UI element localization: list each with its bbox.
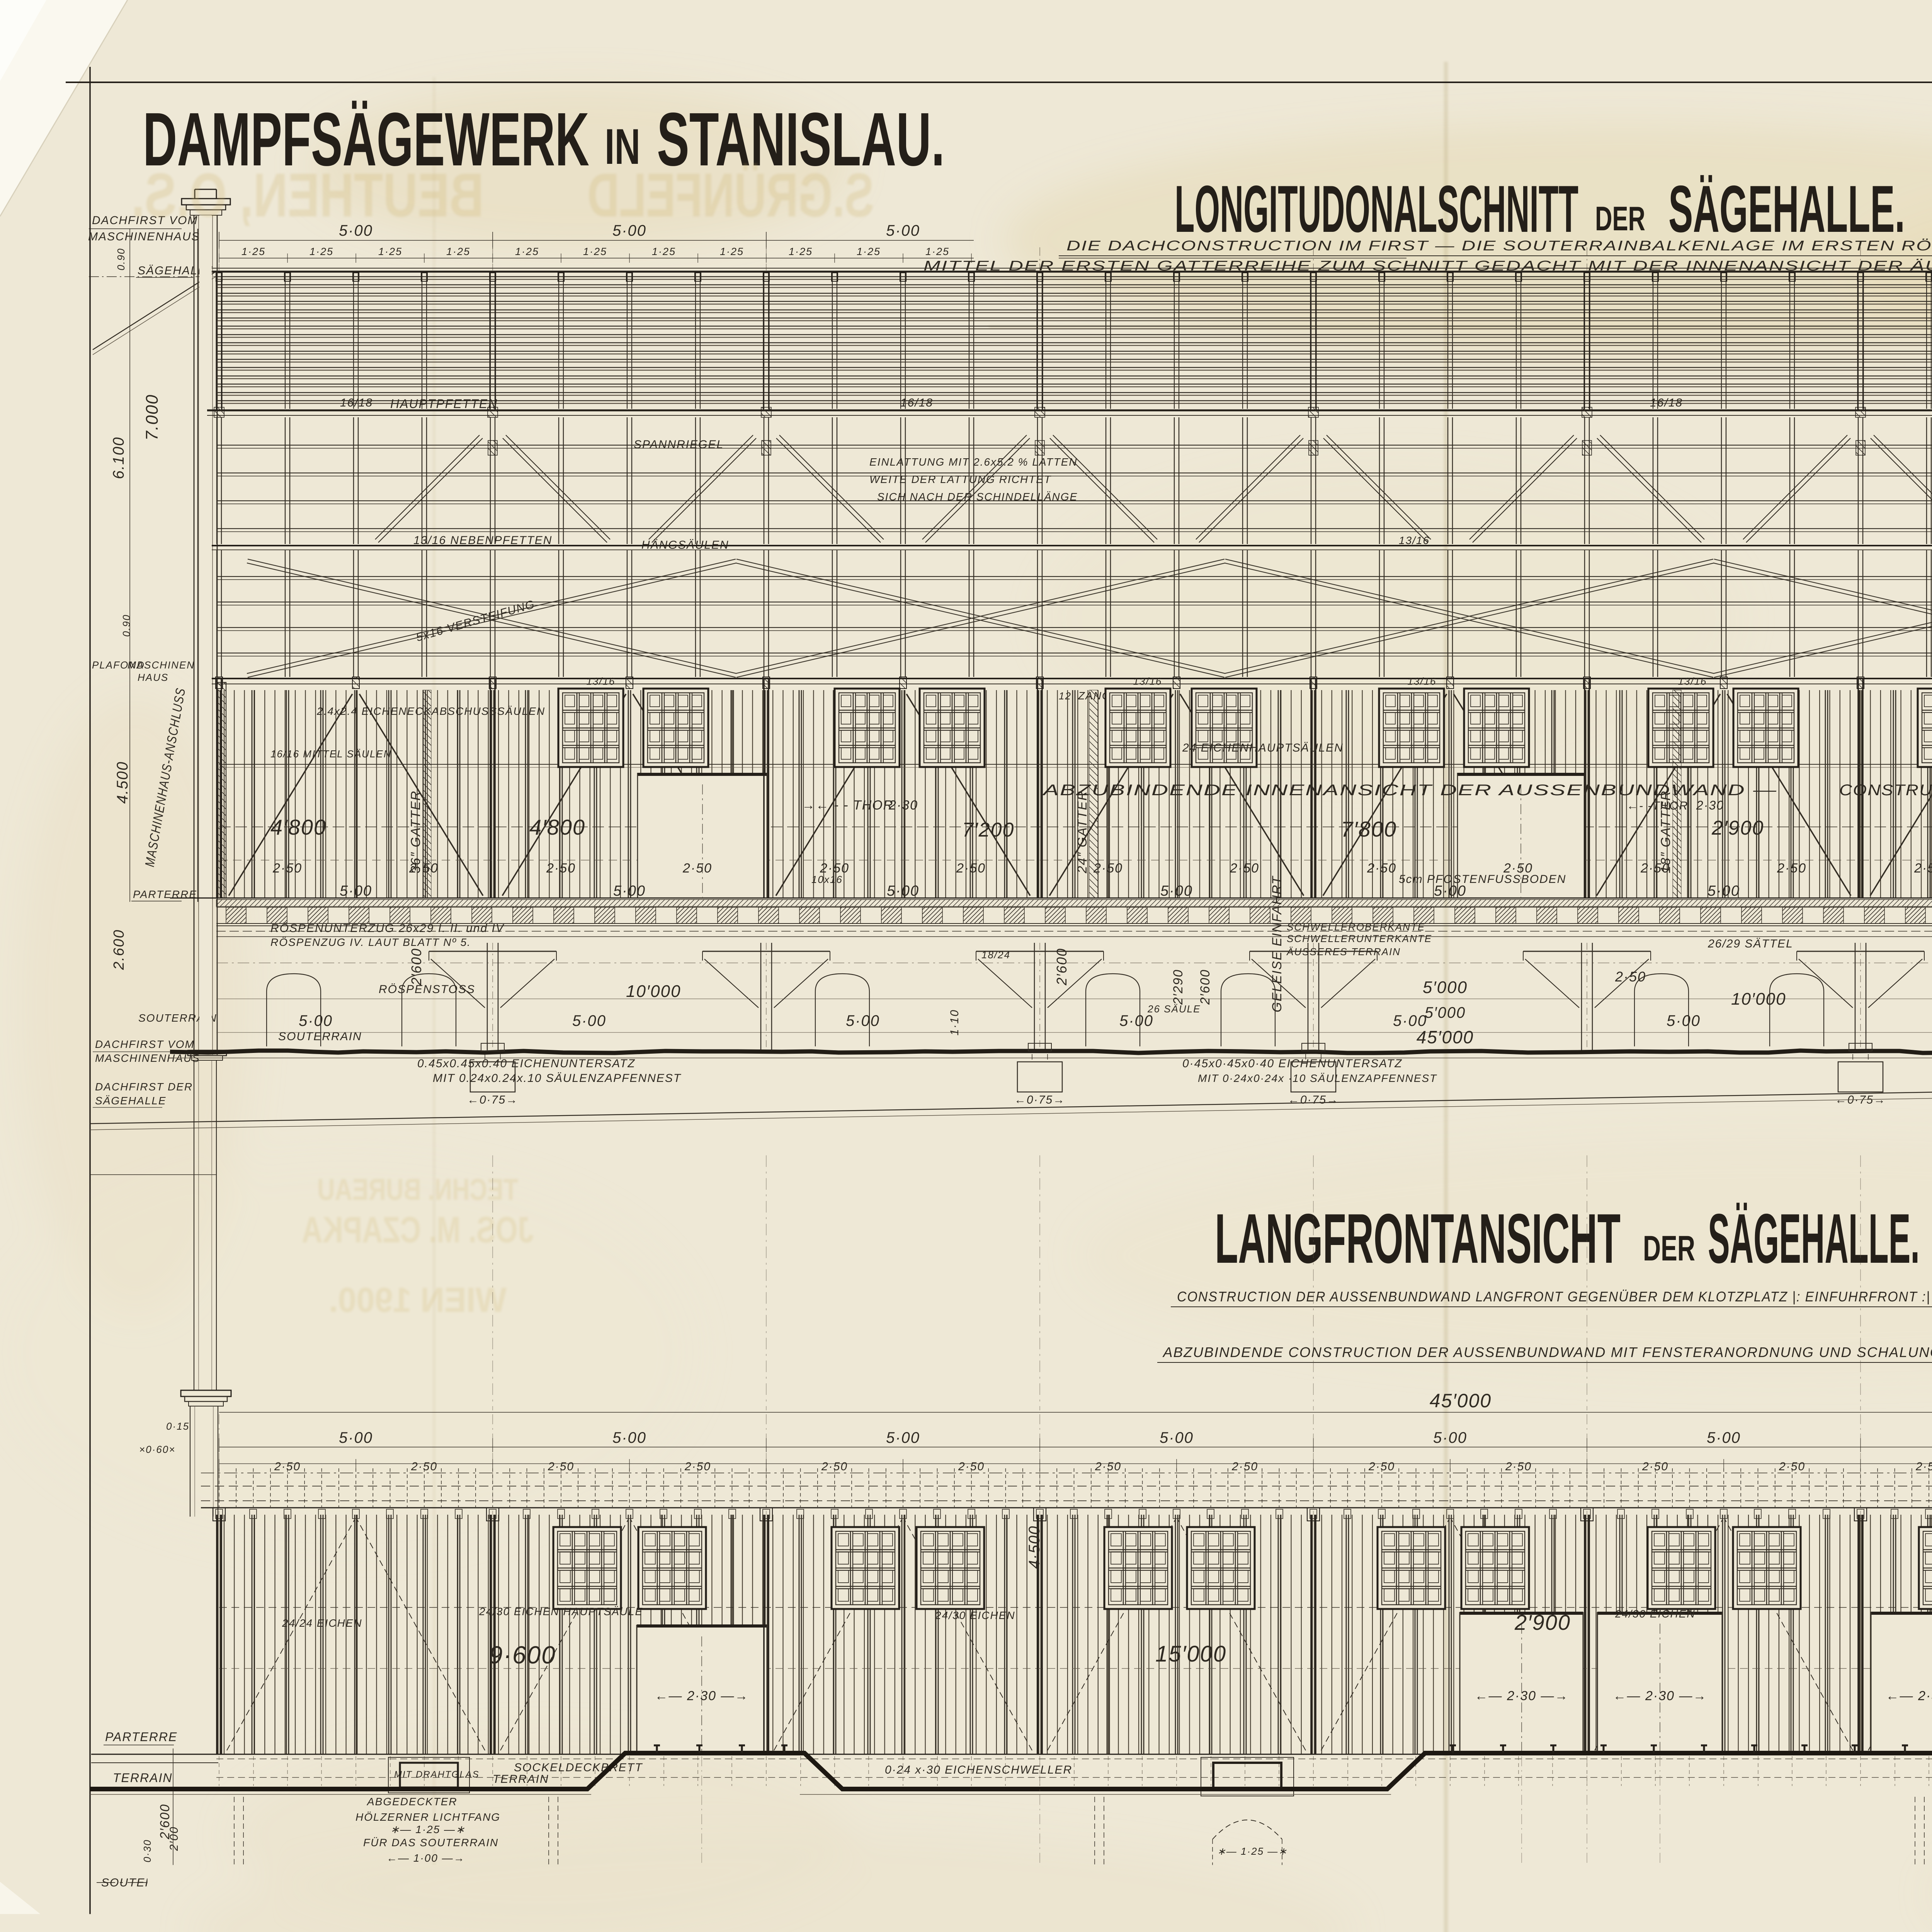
svg-text:EINLATTUNG MIT 2.6x5.2 % LATTE: EINLATTUNG MIT 2.6x5.2 % LATTEN [869,456,1078,468]
svg-text:9·600: 9·600 [489,1641,556,1669]
svg-text:PARTERRE: PARTERRE [105,1730,177,1744]
svg-text:JOS. M. CZAPKA: JOS. M. CZAPKA [302,1209,534,1250]
svg-text:3: 3 [1287,1886,1296,1902]
svg-text:4.500: 4.500 [114,761,131,804]
svg-text:LONGITUDONALSCHNITT: LONGITUDONALSCHNITT [1175,172,1578,246]
svg-text:0·30: 0·30 [141,1839,153,1862]
svg-text:13/16 NEBENPFETTEN: 13/16 NEBENPFETTEN [413,534,552,547]
svg-text:15 m: 15 m [1930,1886,1932,1902]
svg-text:5·00: 5·00 [1708,883,1740,899]
svg-text:2·50: 2·50 [1230,861,1259,876]
svg-text:SPANNRIEGEL: SPANNRIEGEL [634,438,724,451]
svg-text:24 EICHENHAUPTSÄULEN: 24 EICHENHAUPTSÄULEN [1182,742,1344,754]
svg-text:ABZUBINDENDE CONSTRUCTION DE: ABZUBINDENDE CONSTRUCTION DER AUSSENBUND… [1162,1344,1932,1360]
svg-text:2′900: 2′900 [1711,817,1764,839]
svg-text:2′900: 2′900 [1514,1610,1571,1634]
svg-text:7.000: 7.000 [143,394,162,440]
svg-text:2·50: 2·50 [1914,861,1932,876]
svg-text:11: 11 [1721,1886,1738,1902]
svg-text:5·00: 5·00 [846,1012,880,1029]
svg-text:10x16: 10x16 [811,874,843,885]
svg-text:7: 7 [1506,1886,1515,1902]
svg-text:5·00: 5·00 [572,1012,606,1029]
svg-text:2·50: 2·50 [1093,861,1123,876]
svg-text:45′000: 45′000 [1430,1390,1492,1412]
svg-text:TERRAIN: TERRAIN [113,1771,172,1785]
svg-text:DER: DER [1643,1229,1695,1268]
svg-text:←— 1·00 —→: ←— 1·00 —→ [1221,1863,1295,1875]
svg-text:13: 13 [1830,1886,1848,1902]
svg-text:DER: DER [1595,199,1645,238]
svg-text:10: 10 [1666,1886,1684,1902]
svg-text:16/18: 16/18 [900,396,933,409]
svg-text:2·50: 2·50 [1615,969,1646,985]
svg-text:MIT 0.24x0.24x.10 SÄULENZAPFEN: MIT 0.24x0.24x.10 SÄULENZAPFENNEST [433,1072,682,1085]
svg-text:0.90: 0.90 [115,248,127,270]
svg-text:10′000: 10′000 [626,982,681,1001]
svg-text:←0·75→: ←0·75→ [1014,1094,1065,1106]
svg-text:HAUS: HAUS [138,672,168,683]
svg-text:LANGFRONTANSICHT: LANGFRONTANSICHT [1215,1199,1621,1278]
svg-text:2.4x2.4 EICHENECKABSCHUSSSÄULE: 2.4x2.4 EICHENECKABSCHUSSSÄULEN [316,705,545,717]
svg-text:13/16: 13/16 [1133,675,1162,687]
svg-text:2′600: 2′600 [408,948,424,986]
svg-text:SOUTERRAIN: SOUTERRAIN [101,1876,185,1889]
svg-text:2·50: 2·50 [1640,861,1670,876]
svg-text:8: 8 [1561,1886,1570,1902]
svg-text:5·00: 5·00 [1433,1429,1467,1446]
svg-text:24/30 EICHEN: 24/30 EICHEN [935,1609,1015,1621]
svg-text:MASCHINEN: MASCHINEN [128,659,195,671]
svg-text:2·50: 2·50 [956,861,986,876]
svg-text:SÄGEHALLE: SÄGEHALLE [95,1095,167,1107]
svg-text:2·50: 2·50 [1367,861,1396,876]
svg-text:←0·75→: ←0·75→ [467,1094,518,1106]
svg-text:0·45x0·45x0·40 EICHENUNTERSATZ: 0·45x0·45x0·40 EICHENUNTERSATZ [1182,1057,1403,1070]
svg-text:SÄGEHALLE.: SÄGEHALLE. [1708,1199,1920,1278]
svg-text:←— 2·30 —→: ←— 2·30 —→ [1613,1689,1707,1703]
svg-text:SICH NACH DER SCHINDELLÄNGE: SICH NACH DER SCHINDELLÄNGE [877,491,1078,503]
svg-text:1·25: 1·25 [720,246,744,257]
svg-text:24″ GATTER: 24″ GATTER [1075,790,1090,874]
svg-text:5·00: 5·00 [340,883,372,899]
svg-text:S.GRÜNFELD: S.GRÜNFELD [587,160,874,230]
svg-text:16/16 MITTEL SÄULEN: 16/16 MITTEL SÄULEN [270,748,392,760]
svg-text:∗— 1·25 —∗: ∗— 1·25 —∗ [390,1823,466,1835]
svg-text:4·500: 4·500 [1026,1526,1043,1569]
svg-text:2·30: 2·30 [1696,798,1724,812]
svg-text:SCHWELLEROBERKANTE: SCHWELLEROBERKANTE [1287,921,1425,933]
svg-text:9: 9 [1616,1886,1625,1902]
svg-text:4′800: 4′800 [270,815,327,839]
svg-text:0.45x0.45x0.40 EICHENUNTERSATZ: 0.45x0.45x0.40 EICHENUNTERSATZ [417,1057,636,1070]
svg-text:2′600: 2′600 [1198,969,1213,1005]
svg-text:1·25: 1·25 [857,246,881,257]
svg-text:GELEISE EINFAHRT: GELEISE EINFAHRT [1270,876,1284,1012]
svg-text:SÄGEHALLE.: SÄGEHALLE. [1668,172,1905,246]
svg-text:26/29 SÄTTEL: 26/29 SÄTTEL [1708,937,1793,950]
svg-text:0·15: 0·15 [166,1420,189,1432]
svg-text:DIE DACHCONSTRUCTION IM FIRST: DIE DACHCONSTRUCTION IM FIRST — DIE SOUT… [1066,238,1932,253]
svg-text:SOCKELDECKBRETT: SOCKELDECKBRETT [514,1761,643,1774]
svg-text:SOUTERRAINSOHLE IN DER S: SOUTERRAINSOHLE IN DER SÄGEHALLE [423,1866,724,1881]
svg-text:6: 6 [1452,1886,1461,1902]
svg-text:1·25: 1·25 [789,246,813,257]
svg-text:1 : 50 .: 1 : 50 . [1573,1929,1701,1932]
svg-text:24/30 EICHEN HAUPTSÄULE: 24/30 EICHEN HAUPTSÄULE [479,1605,643,1617]
svg-text:←— 2·30 —→: ←— 2·30 —→ [655,1689,749,1703]
svg-text:13/16: 13/16 [1407,675,1436,687]
svg-text:RÖSPENUNTERZUG 26x29 I. II. u: RÖSPENUNTERZUG 26x29 I. II. und IV [270,922,505,935]
svg-text:2·50: 2·50 [272,861,302,876]
svg-text:1·25: 1·25 [515,246,539,257]
svg-text:18/24: 18/24 [981,949,1010,961]
svg-text:TERRAIN: TERRAIN [493,1773,549,1786]
svg-text:→← - - THOR: →← - - THOR [802,798,893,813]
svg-text:1·25: 1·25 [310,246,333,257]
svg-text:×0·60×: ×0·60× [139,1444,175,1455]
svg-text:13/16: 13/16 [586,675,615,687]
svg-text:2.600: 2.600 [111,929,127,970]
svg-text:7′800: 7′800 [1341,817,1397,841]
svg-text:ABZUBINDENDE INNENANSICHT: ABZUBINDENDE INNENANSICHT DER AUSSENBUND… [1042,782,1777,799]
svg-text:1·25: 1·25 [925,246,949,257]
svg-text:SOUTERRAIN: SOUTERRAIN [278,1030,362,1043]
svg-text:WEITE DER LATTUNG RICHTET: WEITE DER LATTUNG RICHTET [869,473,1051,485]
svg-text:←0·75→: ←0·75→ [1288,1094,1339,1106]
svg-text:2: 2 [1233,1886,1242,1902]
svg-text:2′290: 2′290 [1171,969,1185,1005]
svg-text:15′000: 15′000 [1155,1641,1226,1667]
svg-text:BEUTHEN, O.S.: BEUTHEN, O.S. [131,160,484,230]
svg-text:DACHFIRST VOM: DACHFIRST VOM [95,1038,195,1050]
svg-text:CONSTRUCTION DER AUSSENBU: CONSTRUCTION DER AUSSENBUNDWAND MIT FENS… [1839,782,1932,799]
svg-text:DACHFIRST DER: DACHFIRST DER [95,1081,193,1093]
svg-text:16/18: 16/18 [1650,396,1683,409]
svg-text:5·00: 5·00 [1707,1429,1741,1446]
svg-text:13/16: 13/16 [1678,675,1707,687]
svg-text:26 SÄULE: 26 SÄULE [1147,1003,1201,1015]
svg-text:2·50: 2·50 [1915,1460,1932,1473]
svg-text:=0,10: =0,10 [1082,1899,1109,1910]
svg-text:10′000: 10′000 [1731,990,1786,1009]
svg-text:∗— 1·25 —∗: ∗— 1·25 —∗ [1217,1845,1287,1857]
svg-text:5·00: 5·00 [1119,1012,1153,1029]
svg-text:12: 12 [1059,690,1071,702]
svg-text:SCHWELLERUNTERKANTE: SCHWELLERUNTERKANTE [1287,933,1432,944]
svg-text:2·50: 2·50 [546,861,576,876]
svg-text:5·00: 5·00 [339,1429,373,1446]
svg-text:2′600: 2′600 [1054,948,1070,986]
svg-text:WIEN 1900.: WIEN 1900. [329,1281,507,1320]
svg-text:RÖSPENSTOSS: RÖSPENSTOSS [379,983,475,996]
svg-text:14: 14 [1885,1886,1903,1902]
svg-text:4′800: 4′800 [529,815,585,839]
svg-text:HÖLZERNER LICHTFANG: HÖLZERNER LICHTFANG [355,1811,500,1823]
svg-text:0.90: 0.90 [121,614,132,637]
svg-text:TECHN. BUREAU: TECHN. BUREAU [317,1172,518,1206]
svg-text:0·24 x·30 EICHENSCHWELLER: 0·24 x·30 EICHENSCHWELLER [885,1764,1072,1776]
svg-text:1·25: 1·25 [583,246,607,257]
svg-text:1·25: 1·25 [446,246,470,257]
svg-text:5·00: 5·00 [886,1429,920,1446]
svg-text:CONSTRUCTION DER AUSSENBUNDW: CONSTRUCTION DER AUSSENBUNDWAND LANGFRON… [1177,1289,1930,1304]
svg-text:13/16: 13/16 [1399,534,1430,546]
svg-text:7′200: 7′200 [962,819,1014,841]
svg-text:2′00: 2′00 [168,1826,180,1851]
svg-text:←— 2·30 —→: ←— 2·30 —→ [1886,1689,1932,1703]
svg-text:24/24 EICHEN: 24/24 EICHEN [282,1617,362,1629]
svg-text:ABGEDECKTER: ABGEDECKTER [366,1796,457,1808]
svg-text:←— 1·00 —→: ←— 1·00 —→ [386,1852,465,1864]
svg-text:1·25: 1·25 [378,246,402,257]
svg-text:45′000: 45′000 [1417,1027,1474,1047]
svg-text:5′000: 5′000 [1425,1004,1466,1021]
svg-text:2·30: 2·30 [888,798,918,813]
svg-text:1·25: 1·25 [241,246,265,257]
svg-text:6.100: 6.100 [110,437,127,479]
svg-text:HAUPTPFETTEN: HAUPTPFETTEN [390,397,498,411]
svg-text:24/30 EICHEN: 24/30 EICHEN [1615,1608,1696,1620]
svg-text:5·00: 5·00 [887,883,919,899]
svg-text:RÖSPENZUG IV. LAUT BLATT Nº 5: RÖSPENZUG IV. LAUT BLATT Nº 5. [270,936,471,948]
svg-text:12: 12 [1776,1886,1793,1902]
svg-text:=0,5: =0,5 [1111,1899,1132,1910]
svg-text:16/18: 16/18 [340,396,373,409]
svg-text:1·25: 1·25 [652,246,676,257]
svg-text:5·00: 5·00 [299,1012,333,1029]
svg-text:2·50: 2·50 [1777,861,1806,876]
svg-text:5·00: 5·00 [1160,1429,1194,1446]
svg-text:1·10: 1·10 [948,1009,961,1036]
svg-text:5·00: 5·00 [613,883,646,899]
svg-text:4: 4 [1342,1886,1351,1902]
svg-text:5·00: 5·00 [886,222,920,239]
svg-text:5: 5 [1397,1886,1406,1902]
svg-text:5′000: 5′000 [1423,978,1468,997]
svg-text:←— 2·30 —→: ←— 2·30 —→ [1475,1689,1569,1703]
svg-text:2·50: 2·50 [409,861,439,876]
svg-text:FÜR DAS SOUTERRAIN: FÜR DAS SOUTERRAIN [363,1837,498,1849]
svg-text:MIT 0·24x0·24x ·10 SÄULENZAP: MIT 0·24x0·24x ·10 SÄULENZAPFENNEST [1198,1072,1437,1084]
svg-text:2·50: 2·50 [682,861,712,876]
svg-text:5·00: 5·00 [1160,883,1193,899]
svg-text:5cm PFOSTENFUSSBODEN: 5cm PFOSTENFUSSBODEN [1399,873,1566,886]
svg-text:5·00: 5·00 [612,1429,646,1446]
svg-text:1: 1 [1179,1886,1187,1902]
svg-text:MIT DRAHTGLAS: MIT DRAHTGLAS [394,1769,480,1780]
svg-text:5·00: 5·00 [1667,1012,1701,1029]
svg-text:MASCHINENHAUS: MASCHINENHAUS [88,230,200,243]
